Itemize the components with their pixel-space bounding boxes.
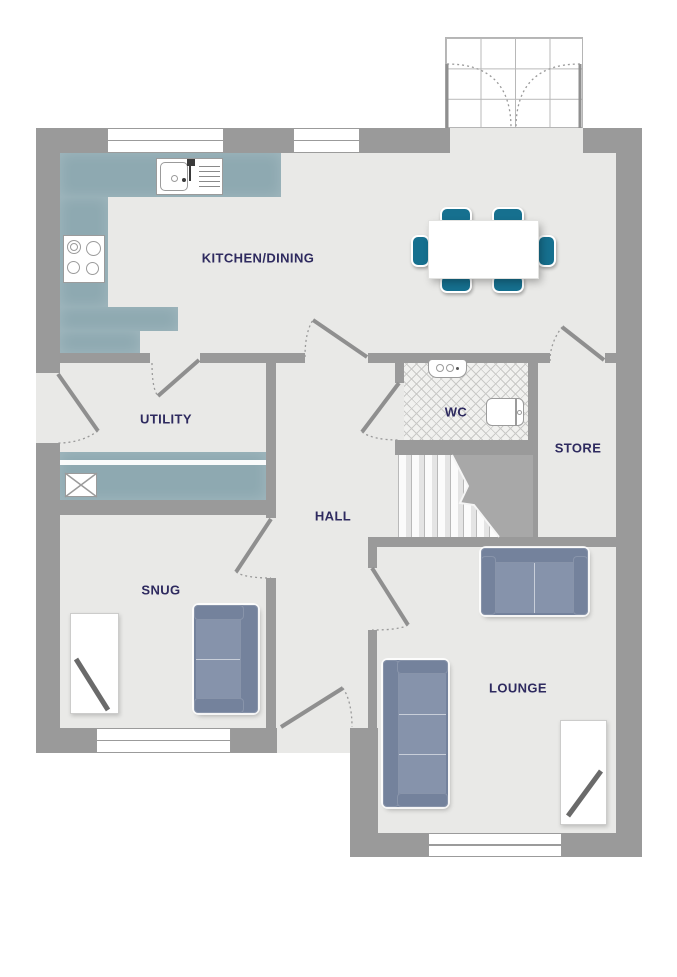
sofa-arm: [397, 660, 448, 674]
kitchen-counter-corner: [60, 307, 178, 331]
sofa-cushion-line: [196, 659, 240, 660]
sofa-cushion-line: [534, 563, 535, 613]
utility-side-door-opening: [36, 373, 60, 443]
basin-plug: [456, 367, 459, 370]
dining-chair-icon: [411, 235, 430, 267]
sofa-back: [481, 548, 588, 563]
wall-kitchen-hall-left: [200, 353, 305, 363]
wall-wc-bottom: [395, 440, 537, 455]
window-pane-line: [294, 140, 359, 142]
hob-icon: [63, 235, 105, 283]
room-label-hall: HALL: [315, 509, 351, 524]
stairs: [398, 455, 528, 537]
wall-exterior-left-lower: [36, 443, 60, 753]
lounge-armchair-icon: [481, 548, 588, 615]
wall-hall-lounge-lower: [368, 630, 377, 728]
hob-ring-inner: [70, 243, 78, 251]
wall-wc-store: [528, 363, 538, 455]
wall-store-stub: [605, 353, 616, 363]
wall-kitchen-utility: [60, 353, 150, 363]
wall-hall-lounge-upper: [368, 547, 377, 568]
wall-utility-hall: [266, 353, 276, 518]
lounge-window: [428, 833, 562, 857]
tv-unit-icon: [560, 720, 607, 825]
sofa-seat: [399, 674, 446, 793]
room-label-store: STORE: [555, 441, 602, 456]
room-label-snug: SNUG: [141, 583, 180, 598]
dining-chair-icon: [537, 235, 556, 267]
sofa-cushion-line: [399, 754, 446, 755]
wall-utility-snug: [60, 500, 276, 515]
window-pane-line: [108, 140, 223, 142]
sofa-back: [383, 660, 399, 807]
wall-exterior-right: [616, 128, 642, 857]
sink-drain: [171, 175, 178, 182]
window-pane-line: [97, 740, 230, 742]
hob-ring: [86, 262, 99, 275]
tv-unit-icon: [70, 613, 119, 714]
dining-window: [293, 128, 360, 153]
lounge-sofa-icon: [383, 660, 448, 807]
kitchen-window: [107, 128, 224, 153]
sofa-arm: [481, 556, 496, 615]
basin-tap: [446, 364, 454, 372]
wall-wc-left: [395, 363, 404, 383]
wall-lounge-top: [368, 537, 616, 547]
hob-ring: [67, 261, 80, 274]
room-label-kitchen-dining: KITCHEN/DINING: [202, 251, 315, 266]
utility-worktop-edge: [60, 460, 266, 465]
snug-sofa-icon: [194, 605, 258, 713]
porch-canopy: [445, 37, 583, 128]
wall-snug-hall: [266, 578, 276, 728]
window-pane-line: [429, 844, 561, 846]
sofa-seat: [196, 620, 240, 698]
floor-plan: KITCHEN/DINING UTILITY WC STORE HALL SNU…: [0, 0, 677, 977]
front-door-opening: [277, 728, 350, 753]
basin-icon: [428, 359, 467, 378]
wall-exterior-left-upper: [36, 153, 60, 373]
washing-machine-icon: [65, 473, 97, 497]
kitchen-sink-icon: [156, 158, 223, 195]
sofa-back: [240, 605, 258, 713]
sink-drainer-lines: [199, 166, 220, 190]
toilet-flush-button: [517, 410, 522, 415]
hob-ring: [86, 241, 101, 256]
toilet-icon: [486, 398, 524, 426]
sofa-seat: [496, 563, 573, 613]
sofa-arm: [194, 698, 244, 713]
sofa-arm: [573, 556, 588, 615]
room-label-utility: UTILITY: [140, 412, 192, 427]
wall-stairs-store: [528, 455, 538, 537]
snug-window: [96, 728, 231, 753]
porch-opening: [450, 128, 583, 153]
sofa-cushion-line: [399, 714, 446, 715]
sofa-arm: [397, 793, 448, 807]
dining-table-icon: [429, 221, 538, 278]
kitchen-counter-corner-lower: [60, 331, 140, 353]
sofa-arm: [194, 605, 244, 620]
room-label-lounge: LOUNGE: [489, 681, 547, 696]
room-label-wc: WC: [445, 405, 467, 420]
basin-tap: [436, 364, 444, 372]
